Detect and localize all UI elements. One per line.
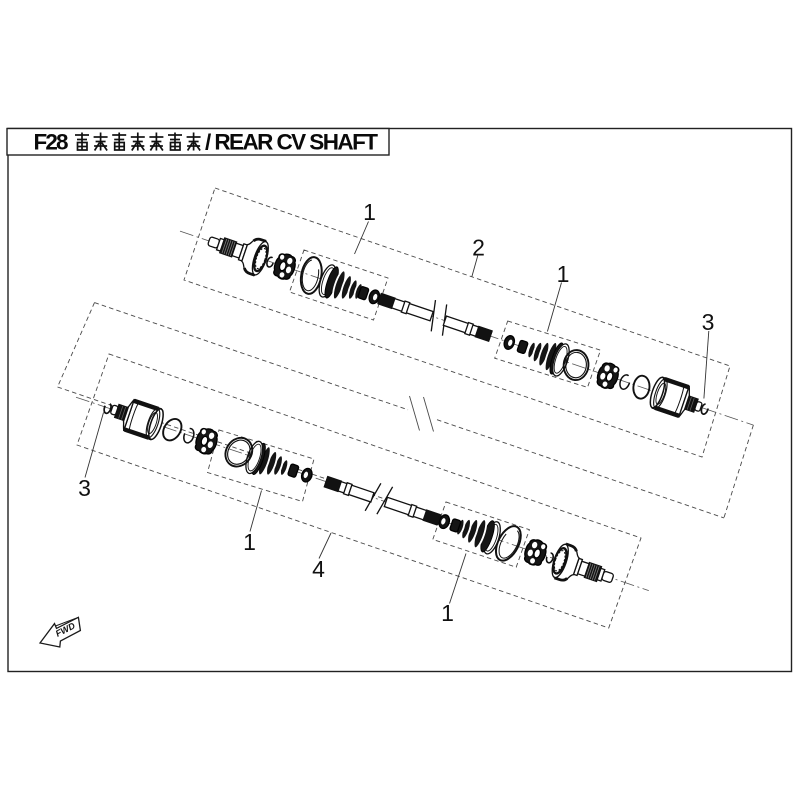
svg-text:3: 3 [78, 475, 91, 501]
svg-text:/ REAR CV SHAFT: / REAR CV SHAFT [205, 130, 378, 155]
svg-text:1: 1 [363, 199, 376, 225]
svg-text:4: 4 [312, 556, 325, 582]
svg-text:3: 3 [702, 309, 715, 335]
svg-text:F28: F28 [34, 130, 69, 155]
svg-text:1: 1 [557, 261, 570, 287]
svg-text:1: 1 [441, 600, 454, 626]
svg-text:2: 2 [472, 235, 485, 261]
svg-text:1: 1 [243, 529, 256, 555]
